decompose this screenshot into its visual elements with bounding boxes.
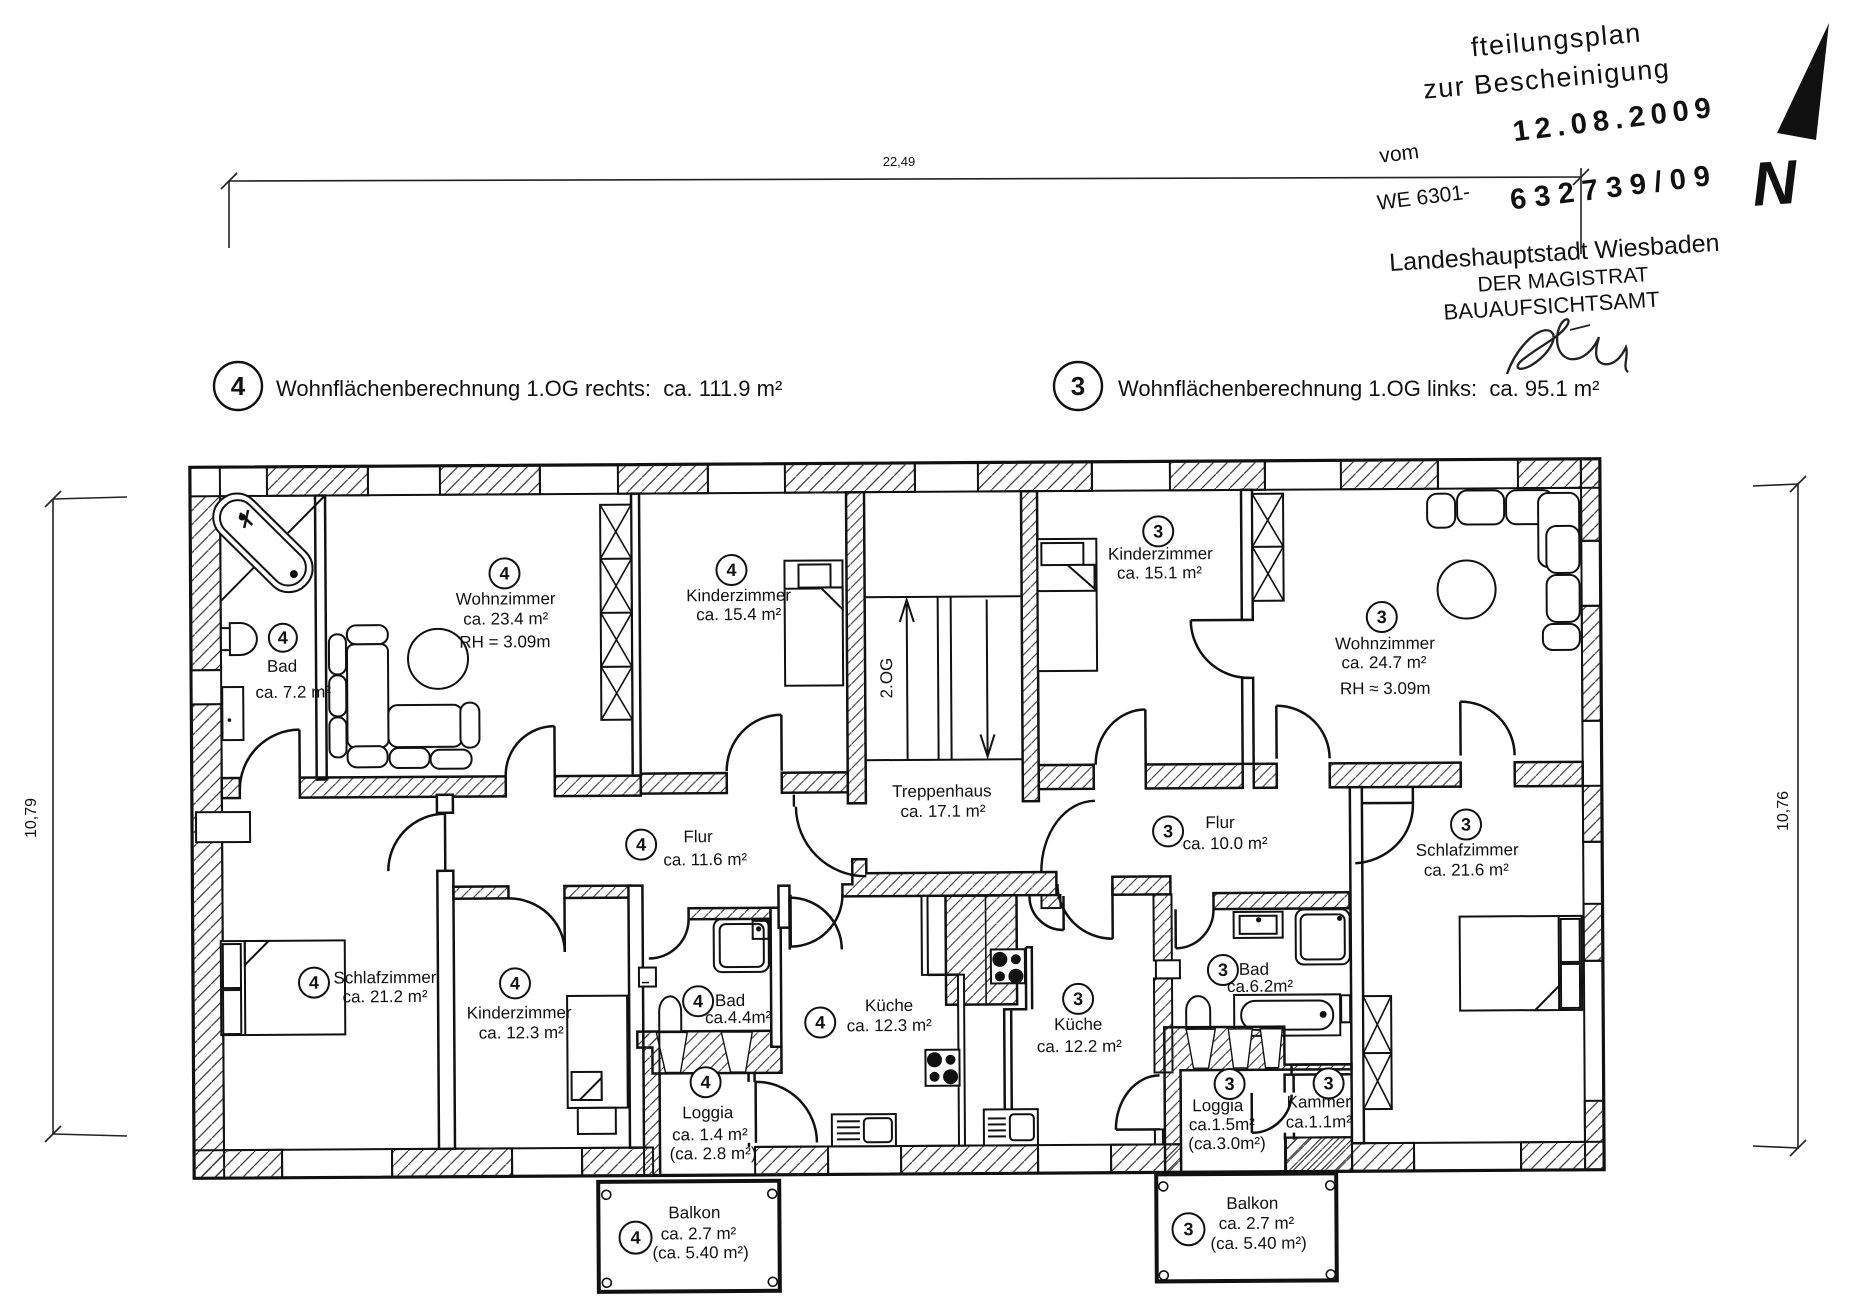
svg-text:ca. 21.2 m²: ca. 21.2 m² — [342, 987, 427, 1007]
svg-text:632739/09: 632739/09 — [1508, 159, 1719, 216]
svg-text:WE 6301-: WE 6301- — [1376, 181, 1471, 215]
svg-text:12.08.2009: 12.08.2009 — [1511, 91, 1719, 148]
svg-text:Balkon: Balkon — [668, 1203, 720, 1222]
svg-text:3: 3 — [1183, 1219, 1193, 1239]
svg-text:3: 3 — [1225, 1074, 1235, 1094]
svg-text:Loggia: Loggia — [1192, 1096, 1244, 1115]
svg-text:10,79: 10,79 — [23, 798, 40, 838]
svg-text:Flur: Flur — [683, 827, 713, 846]
svg-text:Flur: Flur — [1205, 813, 1235, 832]
svg-text:3: 3 — [1073, 989, 1083, 1009]
svg-text:Wohnflächenberechnung 1.OG lin: Wohnflächenberechnung 1.OG links: ca. 95… — [1118, 376, 1599, 401]
svg-text:3: 3 — [1071, 371, 1085, 401]
svg-text:ca.1.1m²: ca.1.1m² — [1286, 1112, 1353, 1131]
svg-text:ca. 24.7 m²: ca. 24.7 m² — [1341, 653, 1426, 673]
svg-text:10,76: 10,76 — [1775, 791, 1792, 831]
svg-text:Kinderzimmer: Kinderzimmer — [1108, 544, 1213, 564]
svg-text:N: N — [1750, 148, 1801, 220]
svg-text:(ca.3.0m²): (ca.3.0m²) — [1188, 1134, 1266, 1153]
svg-text:(ca. 5.40 m²): (ca. 5.40 m²) — [652, 1243, 748, 1263]
svg-text:4: 4 — [309, 973, 319, 993]
svg-text:RH = 3.09m: RH = 3.09m — [459, 632, 550, 652]
svg-text:Schlafzimmer: Schlafzimmer — [333, 968, 436, 988]
svg-text:4: 4 — [701, 1072, 711, 1092]
svg-text:ca.4.4m²: ca.4.4m² — [705, 1008, 772, 1027]
svg-text:Kammer: Kammer — [1287, 1092, 1352, 1111]
svg-text:ca. 12.2 m²: ca. 12.2 m² — [1037, 1037, 1122, 1057]
svg-text:4: 4 — [499, 563, 509, 583]
svg-text:ca. 17.1 m²: ca. 17.1 m² — [900, 801, 985, 821]
svg-text:ca. 1.4 m²: ca. 1.4 m² — [672, 1125, 748, 1144]
svg-text:Wohnzimmer: Wohnzimmer — [456, 589, 556, 609]
svg-text:4: 4 — [278, 628, 288, 648]
svg-text:ca. 7.2 m²: ca. 7.2 m² — [255, 682, 331, 701]
svg-text:3: 3 — [1461, 815, 1471, 835]
svg-text:22,49: 22,49 — [883, 154, 916, 169]
svg-text:Schlafzimmer: Schlafzimmer — [1416, 840, 1519, 860]
svg-text:Loggia: Loggia — [682, 1103, 734, 1122]
svg-text:4: 4 — [693, 991, 703, 1011]
svg-text:4: 4 — [815, 1012, 825, 1032]
svg-text:4: 4 — [726, 560, 736, 580]
svg-text:(ca. 5.40 m²): (ca. 5.40 m²) — [1210, 1234, 1306, 1254]
svg-text:Küche: Küche — [1054, 1015, 1102, 1034]
svg-text:ca. 2.7 m²: ca. 2.7 m² — [661, 1224, 737, 1243]
svg-text:4: 4 — [510, 973, 520, 993]
svg-text:ca. 15.1 m²: ca. 15.1 m² — [1117, 563, 1202, 583]
svg-text:3: 3 — [1153, 521, 1163, 541]
svg-text:Balkon: Balkon — [1226, 1194, 1278, 1213]
svg-text:4: 4 — [636, 835, 646, 855]
svg-text:(ca. 2.8 m²): (ca. 2.8 m²) — [670, 1144, 757, 1164]
svg-text:ca. 10.0 m²: ca. 10.0 m² — [1183, 834, 1268, 854]
svg-text:3: 3 — [1163, 821, 1173, 841]
svg-text:Wohnzimmer: Wohnzimmer — [1335, 634, 1435, 654]
svg-text:3: 3 — [1324, 1073, 1334, 1093]
svg-text:fteilungsplan: fteilungsplan — [1470, 18, 1643, 63]
svg-text:4: 4 — [630, 1228, 640, 1248]
svg-text:vom: vom — [1378, 140, 1420, 168]
svg-text:ca.6.2m²: ca.6.2m² — [1227, 977, 1294, 996]
svg-text:Treppenhaus: Treppenhaus — [892, 781, 992, 801]
svg-text:Bad: Bad — [267, 657, 297, 676]
svg-text:Wohnflächenberechnung 1.OG rec: Wohnflächenberechnung 1.OG rechts: ca. 1… — [276, 376, 782, 401]
svg-text:ca. 15.4 m²: ca. 15.4 m² — [696, 605, 781, 625]
svg-text:ca. 12.3 m²: ca. 12.3 m² — [847, 1016, 932, 1036]
svg-text:Küche: Küche — [865, 996, 913, 1015]
svg-text:ca. 12.3 m²: ca. 12.3 m² — [479, 1023, 564, 1043]
svg-text:3: 3 — [1377, 607, 1387, 627]
svg-text:Kinderzimmer: Kinderzimmer — [686, 586, 791, 606]
svg-text:2.OG: 2.OG — [877, 658, 896, 699]
svg-text:ca. 23.4 m²: ca. 23.4 m² — [463, 609, 548, 629]
svg-text:ca. 2.7 m²: ca. 2.7 m² — [1219, 1214, 1295, 1233]
svg-text:Kinderzimmer: Kinderzimmer — [467, 1003, 572, 1023]
svg-text:ca.1.5m²: ca.1.5m² — [1189, 1115, 1256, 1134]
svg-text:zur Bescheinigung: zur Bescheinigung — [1422, 53, 1671, 104]
svg-text:ca. 11.6 m²: ca. 11.6 m² — [663, 850, 747, 870]
svg-text:ca. 21.6 m²: ca. 21.6 m² — [1424, 860, 1509, 880]
svg-text:BAUAUFSICHTSAMT: BAUAUFSICHTSAMT — [1443, 287, 1660, 325]
svg-text:4: 4 — [231, 371, 246, 401]
svg-text:RH ≈ 3.09m: RH ≈ 3.09m — [1340, 679, 1431, 699]
